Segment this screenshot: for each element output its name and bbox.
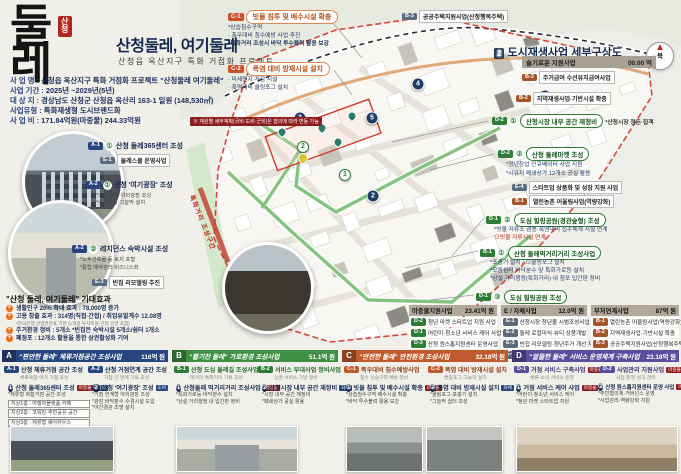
tag-e3: E-3 — [92, 279, 107, 287]
item-line: *주민협의체·거버넌스 운영 — [598, 391, 678, 398]
sub-note: 먹거리·특화거리 가로 조성 — [190, 374, 259, 381]
table-header: 부처연계사업 — [594, 306, 629, 315]
item-title: 폭염 대비 방재시설 설치 — [437, 383, 499, 392]
card-b-item-2: ②산청시장 내부 공간 재정비자체 *시장 내부 공간 재정비 *폐쇄상가 공실… — [262, 383, 338, 405]
table-row: D-2청년 마켓 스타트업 지원 사업 — [409, 317, 497, 327]
item-title: 산청 둘레365센터 조성 — [15, 383, 74, 392]
feature-3-bullet: *노후건축물 등 토지 포함 — [80, 257, 135, 264]
info-line: 사업유형 : 특화재생형 도시브랜드화 — [10, 106, 224, 116]
right-group-3-bullet: ⊙빗물 저류시설 연계 — [494, 234, 546, 242]
tag-d1: D-1 — [514, 366, 529, 374]
card-a-sub1: A-1산청 체류거점 공간 조성 체류복합·여가 거점 조성 — [4, 365, 83, 381]
card-c-item-1: ①빗물 침투 및 배수시설 확충마중물 *상습침수구역 배수시설 확충 *바닥 … — [346, 383, 428, 405]
right-group-2-sub1: E-4 스타트업 상품화 및 성장 지원 사업 — [512, 181, 622, 194]
sub-note: 상권 서비스 기반 정비 — [274, 374, 341, 381]
sub-label: 산청 체류거점 공간 조성 — [21, 365, 83, 374]
right-group-5-title: 도심 힐링공원 조성 — [504, 290, 567, 304]
right-group-2-bullet: *시유지 폐쇄상가 12개소 공실 활용 — [506, 170, 590, 178]
item-line: *상설 거리행정 내 입간판 정비 — [176, 399, 258, 406]
tag-a1: A-1 — [4, 366, 19, 374]
effect-item: 생활인구 20% 확대 효과 : 78,000명 증가 — [6, 305, 196, 313]
callout-c1-bullet: *특화거리 조성시 바닥 투수블럭 활용 보강 — [228, 40, 338, 48]
table-row: B-3공공주택지원사업(산청행복주택) — [591, 339, 679, 349]
feature-3-title: 레지던스 숙박시설 조성 — [100, 244, 168, 254]
right-group-2-title: 산청 둘레마켓 조성 — [526, 147, 589, 161]
card-c-item-2: ②폭염 대비 방재시설 설치자체 *쿨링포그·포충기 설치 *그늘막 쉼터 조성 — [430, 383, 506, 405]
table-amount: 87억 원 — [656, 306, 676, 315]
feature-2-note: *수경시설·그늘막 설치 — [96, 200, 145, 207]
feature-2-note: *거점 연계 야외광장 조성 — [96, 193, 151, 200]
item-number: ② — [262, 384, 267, 392]
seed-badge: 마중물 — [676, 384, 681, 390]
badge-c1: C-1 — [228, 13, 244, 21]
item-line: *특화가로등·바닥분수 설치 — [176, 392, 258, 399]
sub-label: 거점 서비스 구축사업 — [531, 365, 586, 374]
card-a-item-1: ①산청 둘레365센터 조성마중물국비 *체류형 복합거점 공간 조성 지상1층… — [8, 383, 90, 427]
card-c-amount: 32.18억 원 — [472, 352, 508, 361]
tag-a2: A-2 — [88, 366, 103, 374]
card-b-header: B "활기찬 둘레" 가로환경 조성사업 51.1억 원 — [172, 350, 338, 362]
badge-c2: C-2 — [228, 65, 244, 73]
street-road — [215, 445, 258, 471]
page-title: 산청둘레, 여기둘레 — [116, 32, 238, 56]
right-group-4-bullet: *포충기 설치 / ⊙쿨링포그 설치 — [490, 259, 565, 267]
info-line: 사 업 명 : 산청읍 옥산지구 특화 거점화 프로젝트 "산청둘레 여기둘레" — [10, 76, 224, 86]
tag-a2: A-2 — [86, 181, 101, 189]
card-c-letter: C — [342, 350, 356, 362]
circled-number: ② — [515, 150, 524, 159]
sub-label: 폭우대비 침수예방사업 — [361, 365, 420, 374]
card-d-item-2: ②산청 원스톱지원센터 운영 사업마중물 *주민협의체·거버넌스 운영 *사업관… — [598, 383, 678, 404]
item-line: 지상2층 : 코워킹·주민공유 공간 — [8, 409, 90, 418]
right-group-3-title: 도심 힐링공원(경관숲형) 조성 — [514, 213, 606, 227]
compass-needle-icon: ▲ — [647, 43, 673, 53]
card-a-header: A "편안한 둘레" 체류거점공간 조성사업 116억 원 — [2, 350, 168, 362]
item-title: 산청둘레 먹거리거리 조성사업 — [183, 383, 260, 392]
right-row-2-label: 지역재생사업·기반시설 확충 — [533, 92, 611, 105]
sub-label: 폭염 대비 방재시설 설치 — [445, 365, 507, 374]
sub-note: 쿨링포그·그늘막 설치 — [444, 374, 507, 381]
callout-c2-title: 폭염 대비 방재시설 설치 — [246, 62, 330, 76]
item-title: 빗물 침투 및 배수시설 확충 — [353, 383, 423, 392]
photo-residence-shopfront — [222, 242, 314, 334]
table-row: E-3빈집 리모델링·청년주거 개선 지원 — [501, 339, 587, 349]
tag-a1: A-1 — [88, 142, 103, 150]
tag-d2: D-2 — [600, 366, 615, 374]
feature-1-sub: E-1 둘레스쿨 운영사업 — [100, 154, 170, 167]
item-line: *상습침수구역 배수시설 확충 — [346, 392, 428, 399]
map-top-annotation-label: 공공주택지원사업(산청행복주택) — [419, 10, 508, 23]
card-b-sub1: B-1산청 도심 둘레길 조성사업 먹거리·특화거리 가로 조성 — [174, 365, 259, 381]
sub-note: 체류·소비 서비스 운영 — [530, 374, 604, 381]
right-support-bar-value: 00.00 억 — [628, 57, 652, 67]
table-row: E-1산청시장 청년몰 시범조성사업 — [501, 317, 587, 327]
table-row: B-2지역재생사업·기반시설 확충 — [591, 328, 679, 338]
card-c-header: C "안전한 둘레" 안전환경 조성사업 32.18억 원 — [342, 350, 508, 362]
feature-2: A-2 ① 산청 '여기광장' 조성 — [86, 180, 173, 190]
right-group-4: B-1 ① 산청 둘레먹거리거리 조성사업 — [480, 246, 601, 260]
item-number: ② — [92, 384, 100, 392]
circled-number: ③ — [493, 293, 502, 302]
item-title: 산청시장 내부 공간 재정비 — [269, 383, 337, 392]
card-b-letter: B — [172, 350, 186, 362]
right-group-3: D-1 ② 도심 힐링공원(경관숲형) 조성 — [486, 213, 606, 227]
table-amount: 23.41억 원 — [465, 306, 494, 315]
right-group-2: D-2 ② 산청 둘레마켓 조성 — [498, 147, 589, 161]
circled-number: ① — [509, 117, 518, 126]
right-group-1-side: *산청시장 정돈·집객 — [605, 117, 653, 126]
right-group-2-sub1-label: 스타트업 상품화 및 성장 지원 사업 — [529, 181, 623, 194]
item-title: 산청 원스톱지원센터 운영 사업 — [605, 383, 674, 391]
circled-number: ② — [503, 216, 512, 225]
tag-c1: C-1 — [344, 366, 359, 374]
table-header: E / 자체사업 — [504, 306, 537, 315]
tag-d1: D-1 — [476, 293, 491, 301]
info-line: 대 상 지 : 경상남도 산청군 산청읍 옥산리 163-1 일원 (148,5… — [10, 96, 224, 106]
expected-effects-title: "산청 둘레, 여기둘레" 기대효과 — [6, 294, 196, 305]
feature-3-sub: E-3 빈집 리모델링 추진 — [92, 276, 164, 289]
table-header: 마중물지원사업 — [412, 306, 453, 315]
card-c-sub1: C-1폭우대비 침수예방사업 침수 상습구역 예방 정비 — [344, 365, 420, 381]
card-d-item-1: ①거점 서비스 케어 사업마중물 *어린이·청소년 서비스 케어 *청년 마켓 … — [516, 383, 596, 405]
seed-badge: 마중물 — [582, 385, 599, 391]
item-title: 거점 서비스 케어 사업 — [523, 383, 579, 392]
feature-3: A-2 ② 레지던스 숙박시설 조성 — [72, 244, 168, 254]
card-a-title: "편안한 둘레" 체류거점공간 조성사업 — [16, 351, 138, 361]
card-d-amount: 23.18억 원 — [643, 352, 679, 361]
card-a-sub2: A-2산청 거점연계 공간 조성 거점 간 연계 가로 조성 — [88, 365, 167, 381]
item-line: 지상1층 : 여행자플랫폼·카페 — [8, 400, 90, 409]
tag-a2: A-2 — [72, 245, 87, 253]
item-line: *청년 마켓 스타트업 지원 — [516, 399, 596, 406]
card-b-amount: 51.1억 원 — [306, 352, 338, 361]
card-d-sub1: D-1거점 서비스 구축사업마중물 체류·소비 서비스 운영 — [514, 365, 604, 381]
card-a-letter: A — [2, 350, 16, 362]
thumbnail-building-render — [10, 426, 114, 472]
card-b-title: "활기찬 둘레" 가로환경 조성사업 — [186, 351, 306, 361]
effect-item: 폐점포 : 12개소 활용을 통한 상권활성화 기여 — [6, 335, 196, 343]
thumbnail-office-meeting-photo — [516, 426, 678, 472]
effect-item: 주거환경 정비 : 5개소 *빈집은 숙박시설 5개소/쉼터 1개소 — [6, 327, 196, 335]
feature-1-title: 산청 둘레365센터 조성 — [116, 141, 183, 151]
item-number: ① — [176, 384, 181, 392]
logo-calligraphy: 둘레 — [10, 8, 56, 83]
callout-c1-bullet: *상습침수구역 — [228, 24, 338, 32]
feature-1: A-1 ① 산청 둘레365센터 조성 — [88, 141, 183, 151]
right-group-2-sub2: B-1 열린농촌 어울림사업(역량강화) — [512, 195, 614, 208]
thumbnail-street-render — [176, 426, 298, 472]
item-line: *사업관리·역량강화 지원 — [598, 398, 678, 405]
logo: 둘레 — [10, 8, 56, 83]
thumbnail-alley-photo — [346, 426, 423, 472]
sub-label: 산청 거점연계 공간 조성 — [105, 365, 167, 374]
table-ministry-projects: 부처연계사업87억 원 B-1열린농촌 어울림사업(역량강화) B-2지역재생사… — [591, 305, 679, 349]
feature-1-sub-label: 둘레스쿨 운영사업 — [117, 154, 171, 167]
map-marker: 1 — [339, 169, 351, 181]
sub-label: 서비스 부대사업 정비사업 — [275, 365, 341, 374]
tag-b1: B-1 — [512, 198, 527, 206]
card-c-sub2: C-2폭염 대비 방재시설 설치 쿨링포그·그늘막 설치 — [428, 365, 507, 381]
item-line: *어린이·청소년 서비스 케어 — [516, 392, 596, 399]
sub-label: 사업관리 지원사업 — [617, 365, 664, 374]
section-number: 2 — [494, 48, 504, 59]
right-group-2-bullet: *청년창업 인큐베이터 사업 지원 — [506, 161, 582, 169]
tag-b1: B-1 — [480, 249, 495, 257]
item-number: ① — [8, 384, 13, 392]
info-line: 사업 기간 : 2025년 ~2029년(5년) — [10, 86, 224, 96]
budget-note: ※ 재원별 세부계획(국비·도비·군비)은 협의에 따라 변동 가능 — [190, 117, 322, 126]
map-marker: 5 — [366, 112, 379, 125]
tag-b2: B-2 — [258, 366, 273, 374]
card-d-title: "알뜰한 둘레" 서비스 운영체계 구축사업 — [526, 351, 643, 361]
right-group-1: D-2 ① 산청시장 내부 공간 재정비 *산청시장 정돈·집객 — [492, 114, 654, 128]
tag-b3: B-3 — [402, 13, 417, 21]
thumbnail-crosswalk-photo — [426, 426, 503, 472]
callout-c2-bullet: · 폭염대비 쿨링포그 설치 — [228, 84, 330, 92]
card-a-item-2: ②산청 '여기광장' 조성도비 *거점 연계형 야외광장 조성 *광장 바닥분수… — [92, 383, 168, 412]
item-line: *거점 연계형 야외광장 조성 — [92, 392, 168, 399]
sub-note: 거점 간 연계 가로 조성 — [104, 374, 167, 381]
card-b-sub2: B-2서비스 부대사업 정비사업 상권 서비스 기반 정비 — [258, 365, 341, 381]
table-seed-projects: 마중물지원사업23.41억 원 D-2청년 마켓 스타트업 지원 사업 D-1어… — [409, 305, 497, 349]
plus-icon — [6, 327, 13, 334]
right-row-2: B-2 지역재생사업·기반시설 확충 — [516, 92, 611, 105]
item-line: *쿨링포그·포충기 설치 — [430, 392, 506, 399]
callout-c1-title: 빗물 침투 및 배수시설 확충 — [246, 10, 339, 24]
right-group-4-bullet: *모둠쉼터 바닥분수 앞 특화가로등 설치 — [490, 267, 584, 275]
item-line: *폐쇄상가 공실 활용 — [262, 399, 338, 406]
item-number: ① — [346, 384, 351, 392]
callout-c2: C-2 폭염 대비 방재시설 설치 · 미세먼지 저감 시설 · 폭염대비 쿨링… — [228, 62, 330, 92]
plus-icon — [6, 305, 13, 312]
right-group-5: D-1 ③ 도심 힐링공원 조성 — [476, 290, 567, 304]
map-marker: 4 — [412, 78, 425, 91]
logo-seal: 산청 — [58, 16, 72, 37]
right-row-1-label: 주거급여 수선유지급여사업 — [539, 71, 615, 84]
card-d-letter: D — [512, 350, 526, 362]
sub-note: 사업 운영·성과 관리 — [616, 374, 681, 381]
circled-number: ① — [103, 181, 112, 190]
table-amount: 12.0억 원 — [558, 306, 584, 315]
table-row: E-2둘레 로컬미식·뷰티 상품개발 — [501, 328, 587, 338]
map-marker: 2 — [297, 141, 309, 153]
circled-number: ① — [105, 142, 114, 151]
feature-2-title: 산청 '여기광장' 조성 — [114, 180, 173, 190]
tag-b1: B-1 — [174, 366, 189, 374]
sub-label: 산청 도심 둘레길 조성사업 — [191, 365, 259, 374]
card-c-title: "안전한 둘레" 안전환경 조성사업 — [356, 351, 472, 361]
plus-icon — [6, 335, 13, 342]
tag-b3: B-3 — [522, 74, 537, 82]
circled-number: ① — [497, 249, 506, 258]
card-a-amount: 116억 원 — [138, 352, 168, 361]
item-number: ② — [598, 383, 603, 391]
sub-note: 침수 상습구역 예방 정비 — [360, 374, 420, 381]
masterplan-poster: 특화거리 조성구간 1 2 3 4 5 6 2 1 — [0, 0, 681, 474]
item-line: *바닥 투수블럭 활용 보강 — [346, 399, 428, 406]
item-line: *시장 내부 공간 재정비 — [262, 392, 338, 399]
callout-c2-bullet: · 미세먼지 저감 시설 — [228, 76, 330, 84]
fund-badge: 도비 — [156, 385, 168, 391]
right-group-2-sub2-label: 열린농촌 어울림사업(역량강화) — [529, 195, 614, 208]
right-group-4-bullet: *상설 거리행정(특화거리) 내 점포 입간판 정비 — [490, 275, 600, 283]
map-marker: 2 — [367, 190, 380, 203]
right-group-4-title: 산청 둘레먹거리거리 조성사업 — [508, 246, 601, 260]
table-row: D-1어린이·청소년 서비스 케어 사업 — [409, 328, 497, 338]
item-line: *체류형 복합거점 공간 조성 — [8, 392, 90, 399]
feature-3-sub-label: 빈집 리모델링 추진 — [109, 276, 165, 289]
right-group-1-title: 산청시장 내부 공간 재정비 — [520, 114, 603, 128]
fund-badge: 자체 — [501, 385, 513, 391]
callout-c1-bullet: · 폭우대비 침수예방 사업 추진 — [228, 32, 338, 40]
tag-b2: B-2 — [516, 95, 531, 103]
item-title: 산청 '여기광장' 조성 — [102, 383, 154, 392]
item-line: *그늘막 쉼터 조성 — [430, 399, 506, 406]
right-row-1: B-3 주거급여 수선유지급여사업 — [522, 71, 615, 84]
item-number: ② — [430, 384, 435, 392]
callout-c1: C-1 빗물 침투 및 배수시설 확충 *상습침수구역 · 폭우대비 침수예방 … — [228, 10, 338, 48]
seed-badge: 마중물 — [77, 385, 94, 391]
circled-number: ② — [89, 245, 98, 254]
item-line: *야간경관 조명 설치 — [92, 405, 168, 412]
tag-d1: D-1 — [486, 216, 501, 224]
right-support-bar: 슬기로운 지원사업 00.00 억 — [522, 56, 656, 68]
table-row: D-3산청 원스톱지원센터 운영사업 — [409, 339, 497, 349]
tag-d2: D-2 — [498, 150, 513, 158]
tag-e4: E-4 — [512, 184, 527, 192]
seed-badge: 마중물 — [666, 367, 681, 373]
card-d-header: D "알뜰한 둘레" 서비스 운영체계 구축사업 23.18억 원 — [512, 350, 679, 362]
right-support-bar-title: 슬기로운 지원사업 — [526, 57, 576, 67]
plus-icon — [6, 313, 13, 320]
map-top-annotation: B-3 공공주택지원사업(산청행복주택) — [402, 10, 508, 23]
right-group-3-bullet: *빗물 저류조 겸용·폭염대비 집수체계 시설 연계 — [494, 226, 608, 234]
tag-e1: E-1 — [100, 157, 115, 165]
table-row: B-1열린농촌 어울림사업(역량강화) — [591, 317, 679, 327]
card-b-item-1: ①산청둘레 먹거리거리 조성사업마중물 *특화가로등·바닥분수 설치 *상설 거… — [176, 383, 258, 405]
tag-c2: C-2 — [428, 366, 443, 374]
expected-effects: "산청 둘레, 여기둘레" 기대효과 생활인구 20% 확대 효과 : 78,0… — [6, 294, 196, 343]
card-d-sub2: D-2사업관리 지원사업마중물 사업 운영·성과 관리 — [600, 365, 681, 381]
feature-3-bullet: *통합 예약관리 비즈니스화 — [80, 265, 139, 272]
sub-note: 체류복합·여가 거점 조성 — [20, 374, 83, 381]
item-number: ① — [516, 384, 521, 392]
tag-d2: D-2 — [492, 117, 507, 125]
effect-item: 고용 창출 효과 : 314명(직접·간접) / 취업유발계수 12.08명 *… — [6, 313, 196, 327]
